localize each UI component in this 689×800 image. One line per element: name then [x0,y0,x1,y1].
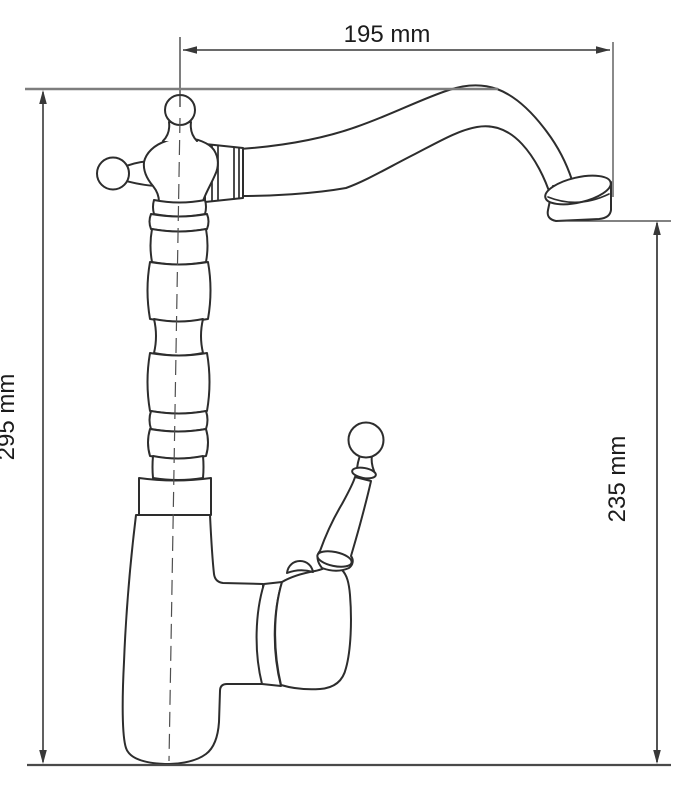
column-base-collar [139,478,211,515]
arrow-down [39,750,47,764]
dimension-label-spout-reach: 195 mm [344,21,431,48]
cross-handle-ball [97,158,129,190]
lever-ball [349,423,384,458]
column-segment [148,353,210,414]
body-trunk [123,515,263,764]
column-segment [148,429,208,459]
arrow-left [183,46,197,54]
column-segment [151,229,208,265]
technical-drawing-canvas: 195 mm 295 mm 235 mm [0,0,689,800]
spout-tube [240,85,575,197]
column-segment [150,214,209,232]
dimension-label-outlet-height: 235 mm [604,436,631,523]
column-segment-waist [154,319,203,356]
cartridge-dome [287,561,313,573]
column-segment [148,262,211,322]
dimension-label-total-height: 295 mm [0,374,20,461]
column-segment [150,411,208,432]
arrow-up [653,221,661,235]
column-segment [153,200,206,217]
column-segment [153,456,204,480]
arrow-down [653,750,661,764]
arrow-up [39,90,47,104]
faucet-outline [97,85,613,764]
cartridge-housing [275,566,351,689]
dimension-outlet-height: 235 mm [558,221,671,764]
faucet-dimension-drawing: 195 mm 295 mm 235 mm [0,0,689,800]
arrow-right [596,46,610,54]
